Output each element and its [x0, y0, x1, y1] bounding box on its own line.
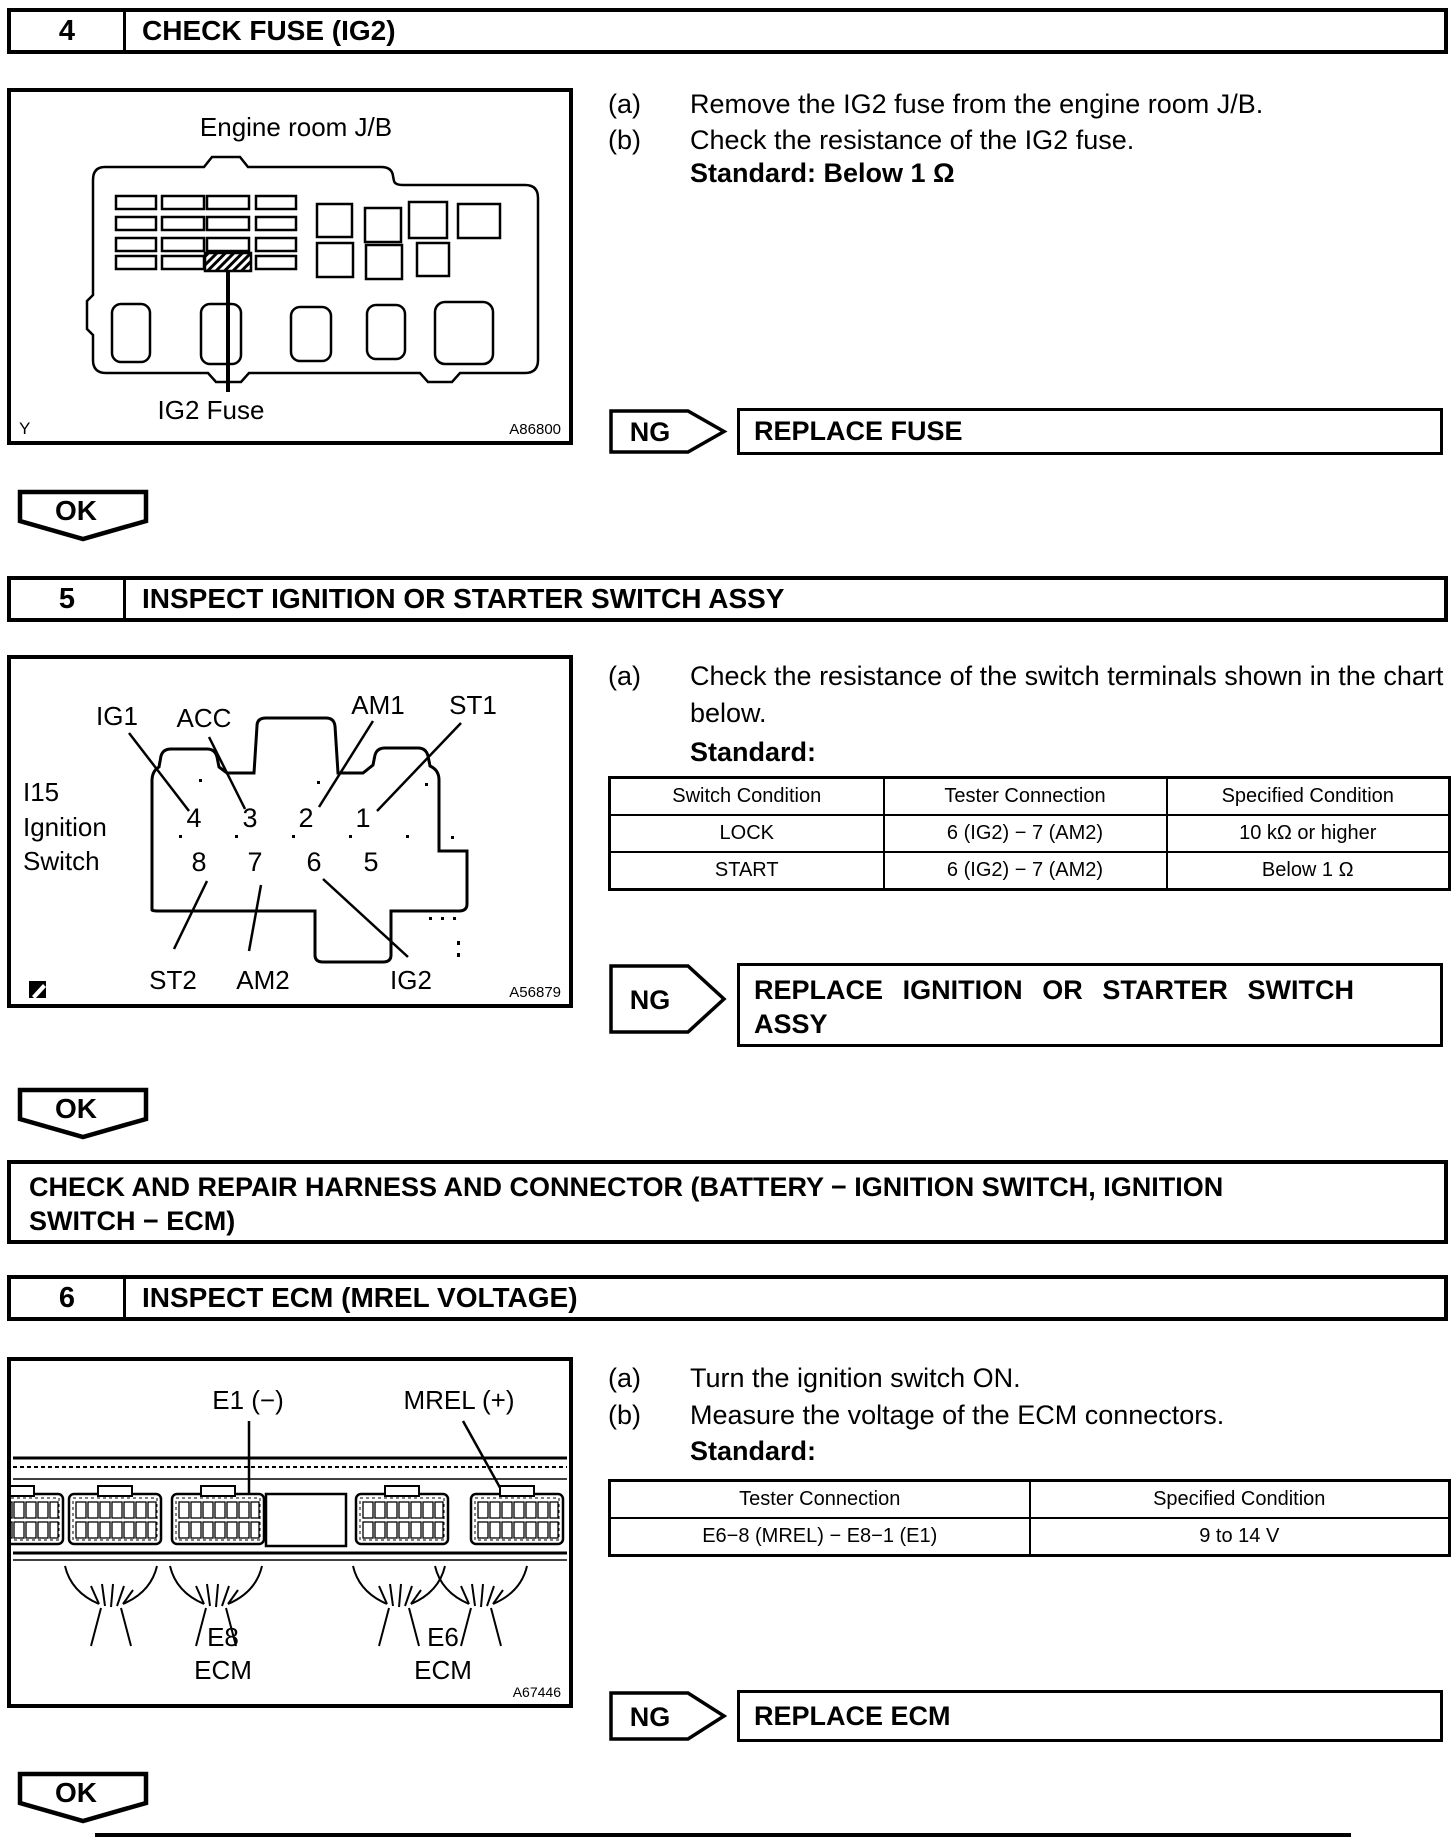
- standard-line: Standard:: [690, 737, 816, 768]
- table-cell: 6 (IG2) − 7 (AM2): [884, 852, 1167, 890]
- standard-line: Standard:: [690, 1436, 816, 1467]
- ok-arrow: OK: [16, 1770, 150, 1831]
- spec-table-ecm: Tester Connection Specified Condition E6…: [608, 1479, 1451, 1557]
- ng-row-step6: NG REPLACE ECM: [608, 1690, 1443, 1742]
- svg-text:5: 5: [363, 847, 378, 877]
- ok-label: OK: [55, 1777, 97, 1808]
- instruction-text: Turn the ignition switch ON.: [690, 1360, 1448, 1397]
- probe-label-positive: MREL (+): [404, 1385, 515, 1415]
- ng-action-box: REPLACE ECM: [737, 1690, 1443, 1742]
- leader-lines: [129, 721, 461, 957]
- terminal-labels-top: IG1 ACC AM1 ST1: [96, 690, 497, 733]
- table-header-cell: Switch Condition: [610, 778, 884, 816]
- ig2-fuse-highlight: [205, 253, 251, 271]
- figure-code: A86800: [509, 421, 561, 438]
- ok-arrow: OK: [16, 488, 150, 549]
- table-header-cell: Tester Connection: [610, 1481, 1030, 1519]
- ng-action-text: REPLACE FUSE: [754, 416, 963, 447]
- pin-numbers-top: 4 3 2 1: [186, 803, 370, 833]
- standard-line: Standard: Below 1 Ω: [690, 158, 955, 189]
- connector-outline: [152, 718, 467, 962]
- instruction-item: (a)Turn the ignition switch ON.: [608, 1360, 1453, 1397]
- svg-text:8: 8: [191, 847, 206, 877]
- relay-blocks: [112, 302, 493, 364]
- ng-arrow: NG: [608, 408, 728, 455]
- step-6-number: 6: [11, 1279, 126, 1317]
- table-cell: 9 to 14 V: [1030, 1518, 1450, 1556]
- terminal-labels-bottom: ST2 AM2 IG2: [149, 965, 432, 995]
- instruction-text: Check the resistance of the IG2 fuse.: [690, 122, 1448, 159]
- table-cell: LOCK: [610, 815, 884, 852]
- ng-action-text: REPLACE ECM: [754, 1701, 951, 1732]
- svg-text:ACC: ACC: [177, 703, 232, 733]
- ng-label: NG: [630, 985, 671, 1015]
- table-cell: START: [610, 852, 884, 890]
- ng-action-box: REPLACE FUSE: [737, 408, 1443, 455]
- ng-arrow: NG: [608, 1690, 728, 1742]
- figure-ecm: E1 (−) MREL (+): [7, 1357, 573, 1708]
- figure-corner-mark: Y: [19, 419, 30, 438]
- svg-text:1: 1: [355, 803, 370, 833]
- svg-text:6: 6: [306, 847, 321, 877]
- ng-label: NG: [630, 1702, 671, 1732]
- step-5-title: INSPECT IGNITION OR STARTER SWITCH ASSY: [126, 580, 784, 618]
- connector-label-e8-sub: ECM: [194, 1655, 252, 1685]
- relay-squares: [317, 202, 500, 279]
- svg-text:AM1: AM1: [351, 690, 404, 720]
- ig2-fuse-callout: IG2 Fuse: [158, 395, 265, 425]
- svg-text:7: 7: [247, 847, 262, 877]
- instruction-item: (b)Measure the voltage of the ECM connec…: [608, 1397, 1453, 1434]
- ng-action-box: REPLACE IGNITION OR STARTER SWITCH ASSY: [737, 963, 1443, 1047]
- table-cell: E6−8 (MREL) − E8−1 (E1): [610, 1518, 1030, 1556]
- figure-code: A67446: [513, 1684, 561, 1700]
- instruction-text: Check the resistance of the switch termi…: [690, 658, 1448, 732]
- step-4-header: 4 CHECK FUSE (IG2): [7, 8, 1448, 54]
- service-manual-page: 4 CHECK FUSE (IG2) Engine room J/B: [0, 0, 1456, 1840]
- ok-label: OK: [55, 495, 97, 526]
- table-row: E6−8 (MREL) − E8−1 (E1) 9 to 14 V: [610, 1518, 1450, 1556]
- step-6-title: INSPECT ECM (MREL VOLTAGE): [126, 1279, 578, 1317]
- table-cell: 10 kΩ or higher: [1167, 815, 1450, 852]
- step-4-number: 4: [11, 12, 126, 50]
- table-cell: Below 1 Ω: [1167, 852, 1450, 890]
- ignition-switch-diagram: I15 Ignition Switch IG1 ACC AM1 ST1 4 3 …: [11, 659, 569, 1004]
- table-row: LOCK 6 (IG2) − 7 (AM2) 10 kΩ or higher: [610, 815, 1450, 852]
- instruction-item: (a)Remove the IG2 fuse from the engine r…: [608, 86, 1453, 123]
- instruction-index: (a): [608, 86, 690, 123]
- instruction-item: (a)Check the resistance of the switch te…: [608, 658, 1453, 732]
- table-row: START 6 (IG2) − 7 (AM2) Below 1 Ω: [610, 852, 1450, 890]
- svg-text:4: 4: [186, 803, 201, 833]
- svg-text:AM2: AM2: [236, 965, 289, 995]
- table-cell: 6 (IG2) − 7 (AM2): [884, 815, 1167, 852]
- svg-text:ST1: ST1: [449, 690, 497, 720]
- instruction-item: (b)Check the resistance of the IG2 fuse.: [608, 122, 1453, 159]
- table-header-cell: Specified Condition: [1030, 1481, 1450, 1519]
- svg-text:IG1: IG1: [96, 701, 138, 731]
- step-5-number: 5: [11, 580, 126, 618]
- svg-text:Ignition: Ignition: [23, 812, 107, 842]
- connector-label-e6: E6: [427, 1622, 459, 1652]
- component-label: I15 Ignition Switch: [23, 777, 107, 876]
- instruction-text: Remove the IG2 fuse from the engine room…: [690, 86, 1448, 123]
- next-section-partial-border: [95, 1833, 1351, 1837]
- connector-label-e8: E8: [207, 1622, 239, 1652]
- step-5-header: 5 INSPECT IGNITION OR STARTER SWITCH ASS…: [7, 576, 1448, 622]
- instruction-index: (a): [608, 1360, 690, 1397]
- connector-label-e6-sub: ECM: [414, 1655, 472, 1685]
- ecm-connectors: [11, 1486, 563, 1546]
- ng-row-step5: NG REPLACE IGNITION OR STARTER SWITCH AS…: [608, 963, 1443, 1047]
- figure-engine-room-jb: Engine room J/B IG2 Fuse Y A86800: [7, 88, 573, 445]
- ecm-connector-diagram: E1 (−) MREL (+): [11, 1361, 569, 1704]
- corner-print-icon: [29, 981, 46, 999]
- ng-row-step4: NG REPLACE FUSE: [608, 408, 1443, 455]
- ng-action-text: REPLACE IGNITION OR STARTER SWITCH ASSY: [754, 973, 1354, 1041]
- figure-ignition-switch: I15 Ignition Switch IG1 ACC AM1 ST1 4 3 …: [7, 655, 573, 1008]
- instruction-text: Measure the voltage of the ECM connector…: [690, 1397, 1448, 1434]
- figure-title: Engine room J/B: [200, 112, 392, 142]
- svg-text:ST2: ST2: [149, 965, 197, 995]
- ng-arrow: NG: [608, 963, 728, 1035]
- step-4-title: CHECK FUSE (IG2): [126, 12, 396, 50]
- ok-label: OK: [55, 1093, 97, 1124]
- svg-text:2: 2: [298, 803, 313, 833]
- figure-code: A56879: [509, 984, 561, 1001]
- instruction-index: (a): [608, 658, 690, 695]
- table-header-cell: Tester Connection: [884, 778, 1167, 816]
- pin-numbers-bottom: 8 7 6 5: [191, 847, 378, 877]
- probe-label-negative: E1 (−): [212, 1385, 284, 1415]
- spec-table-ignition-switch: Switch Condition Tester Connection Speci…: [608, 776, 1451, 891]
- ok-arrow: OK: [16, 1086, 150, 1147]
- table-header-cell: Specified Condition: [1167, 778, 1450, 816]
- engine-room-jb-diagram: Engine room J/B IG2 Fuse Y A86800: [11, 92, 569, 441]
- ng-label: NG: [630, 417, 671, 447]
- svg-text:I15: I15: [23, 777, 59, 807]
- svg-text:IG2: IG2: [390, 965, 432, 995]
- step-6-header: 6 INSPECT ECM (MREL VOLTAGE): [7, 1275, 1448, 1321]
- harness-check-text: CHECK AND REPAIR HARNESS AND CONNECTOR (…: [29, 1170, 1259, 1238]
- instruction-index: (b): [608, 122, 690, 159]
- svg-text:Switch: Switch: [23, 846, 100, 876]
- instruction-index: (b): [608, 1397, 690, 1434]
- harness-check-box: CHECK AND REPAIR HARNESS AND CONNECTOR (…: [7, 1160, 1448, 1244]
